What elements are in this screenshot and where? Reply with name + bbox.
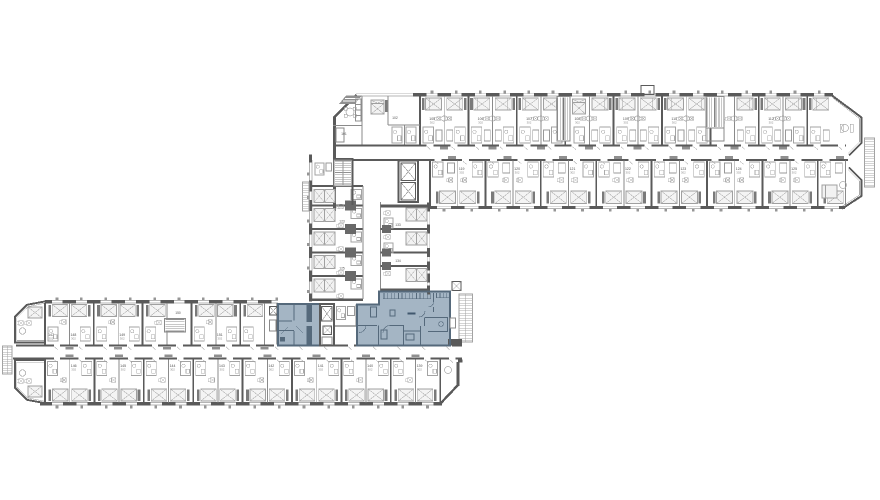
svg-text:302: 302 <box>430 120 435 124</box>
svg-text:302: 302 <box>681 170 686 174</box>
svg-text:302: 302 <box>318 367 323 371</box>
svg-text:302: 302 <box>515 170 520 174</box>
svg-text:302: 302 <box>368 367 373 371</box>
svg-text:302: 302 <box>170 367 175 371</box>
svg-text:125: 125 <box>339 267 345 271</box>
svg-text:302: 302 <box>459 170 464 174</box>
svg-text:302: 302 <box>478 120 483 124</box>
svg-text:302: 302 <box>625 170 630 174</box>
svg-text:302: 302 <box>769 120 774 124</box>
svg-text:302: 302 <box>736 170 741 174</box>
svg-text:302: 302 <box>49 336 54 340</box>
svg-text:302: 302 <box>120 336 125 340</box>
svg-text:150: 150 <box>175 311 181 315</box>
svg-text:302: 302 <box>71 336 76 340</box>
svg-text:302: 302 <box>417 367 422 371</box>
svg-text:302: 302 <box>219 367 224 371</box>
svg-text:123: 123 <box>339 220 345 224</box>
svg-text:302: 302 <box>121 367 126 371</box>
svg-text:133: 133 <box>395 223 401 227</box>
svg-text:102: 102 <box>392 116 398 120</box>
svg-text:302: 302 <box>217 336 222 340</box>
svg-text:302: 302 <box>527 120 532 124</box>
svg-text:302: 302 <box>575 120 580 124</box>
svg-text:302: 302 <box>269 367 274 371</box>
svg-text:302: 302 <box>71 367 76 371</box>
svg-text:302: 302 <box>570 170 575 174</box>
svg-text:302: 302 <box>792 170 797 174</box>
svg-text:101: 101 <box>341 132 347 136</box>
svg-text:302: 302 <box>672 120 677 124</box>
svg-text:134: 134 <box>395 259 401 263</box>
svg-text:302: 302 <box>623 120 628 124</box>
